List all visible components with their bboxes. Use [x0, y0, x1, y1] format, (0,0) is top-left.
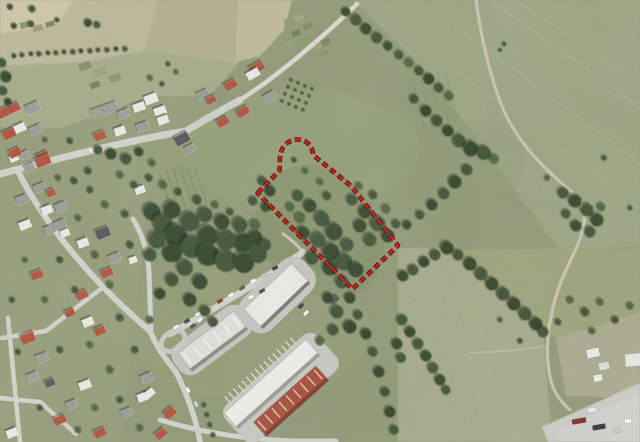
photo-grain-texture: [0, 0, 640, 442]
aerial-photo: [0, 0, 640, 442]
satellite-map-canvas[interactable]: [0, 0, 640, 442]
